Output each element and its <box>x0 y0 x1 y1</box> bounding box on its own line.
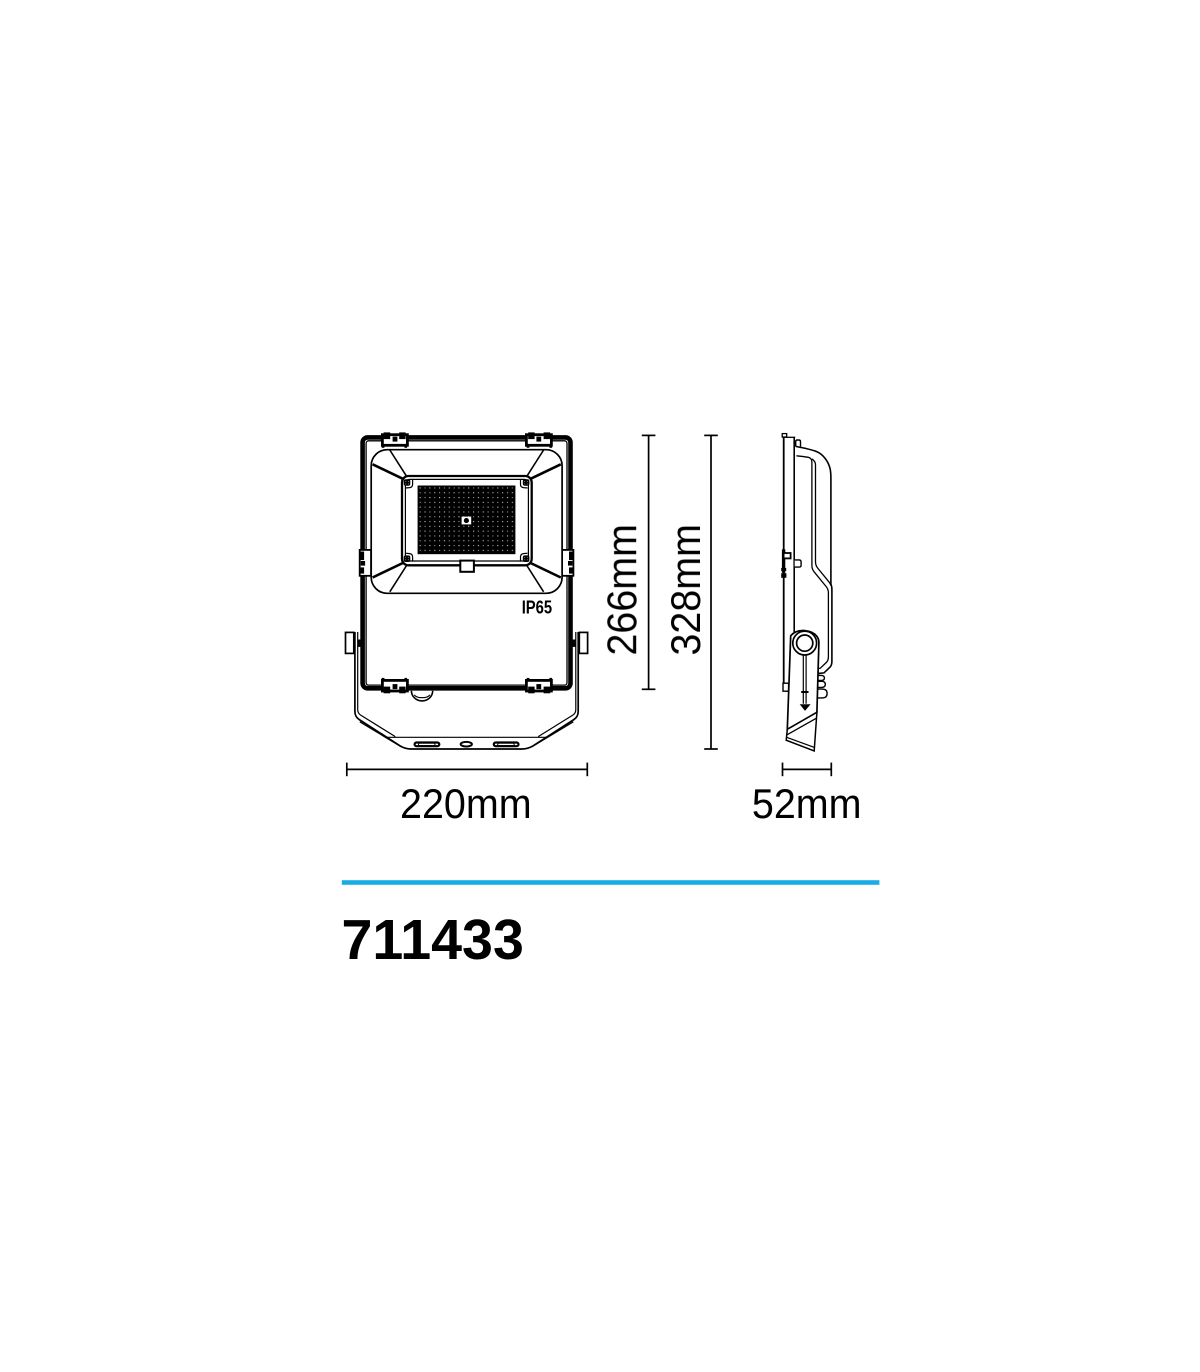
svg-text:IP65: IP65 <box>522 597 552 618</box>
svg-text:711433: 711433 <box>342 907 524 971</box>
svg-text:220mm: 220mm <box>400 780 532 827</box>
svg-text:52mm: 52mm <box>752 780 862 827</box>
svg-text:328mm: 328mm <box>662 524 709 656</box>
svg-text:266mm: 266mm <box>598 524 645 656</box>
